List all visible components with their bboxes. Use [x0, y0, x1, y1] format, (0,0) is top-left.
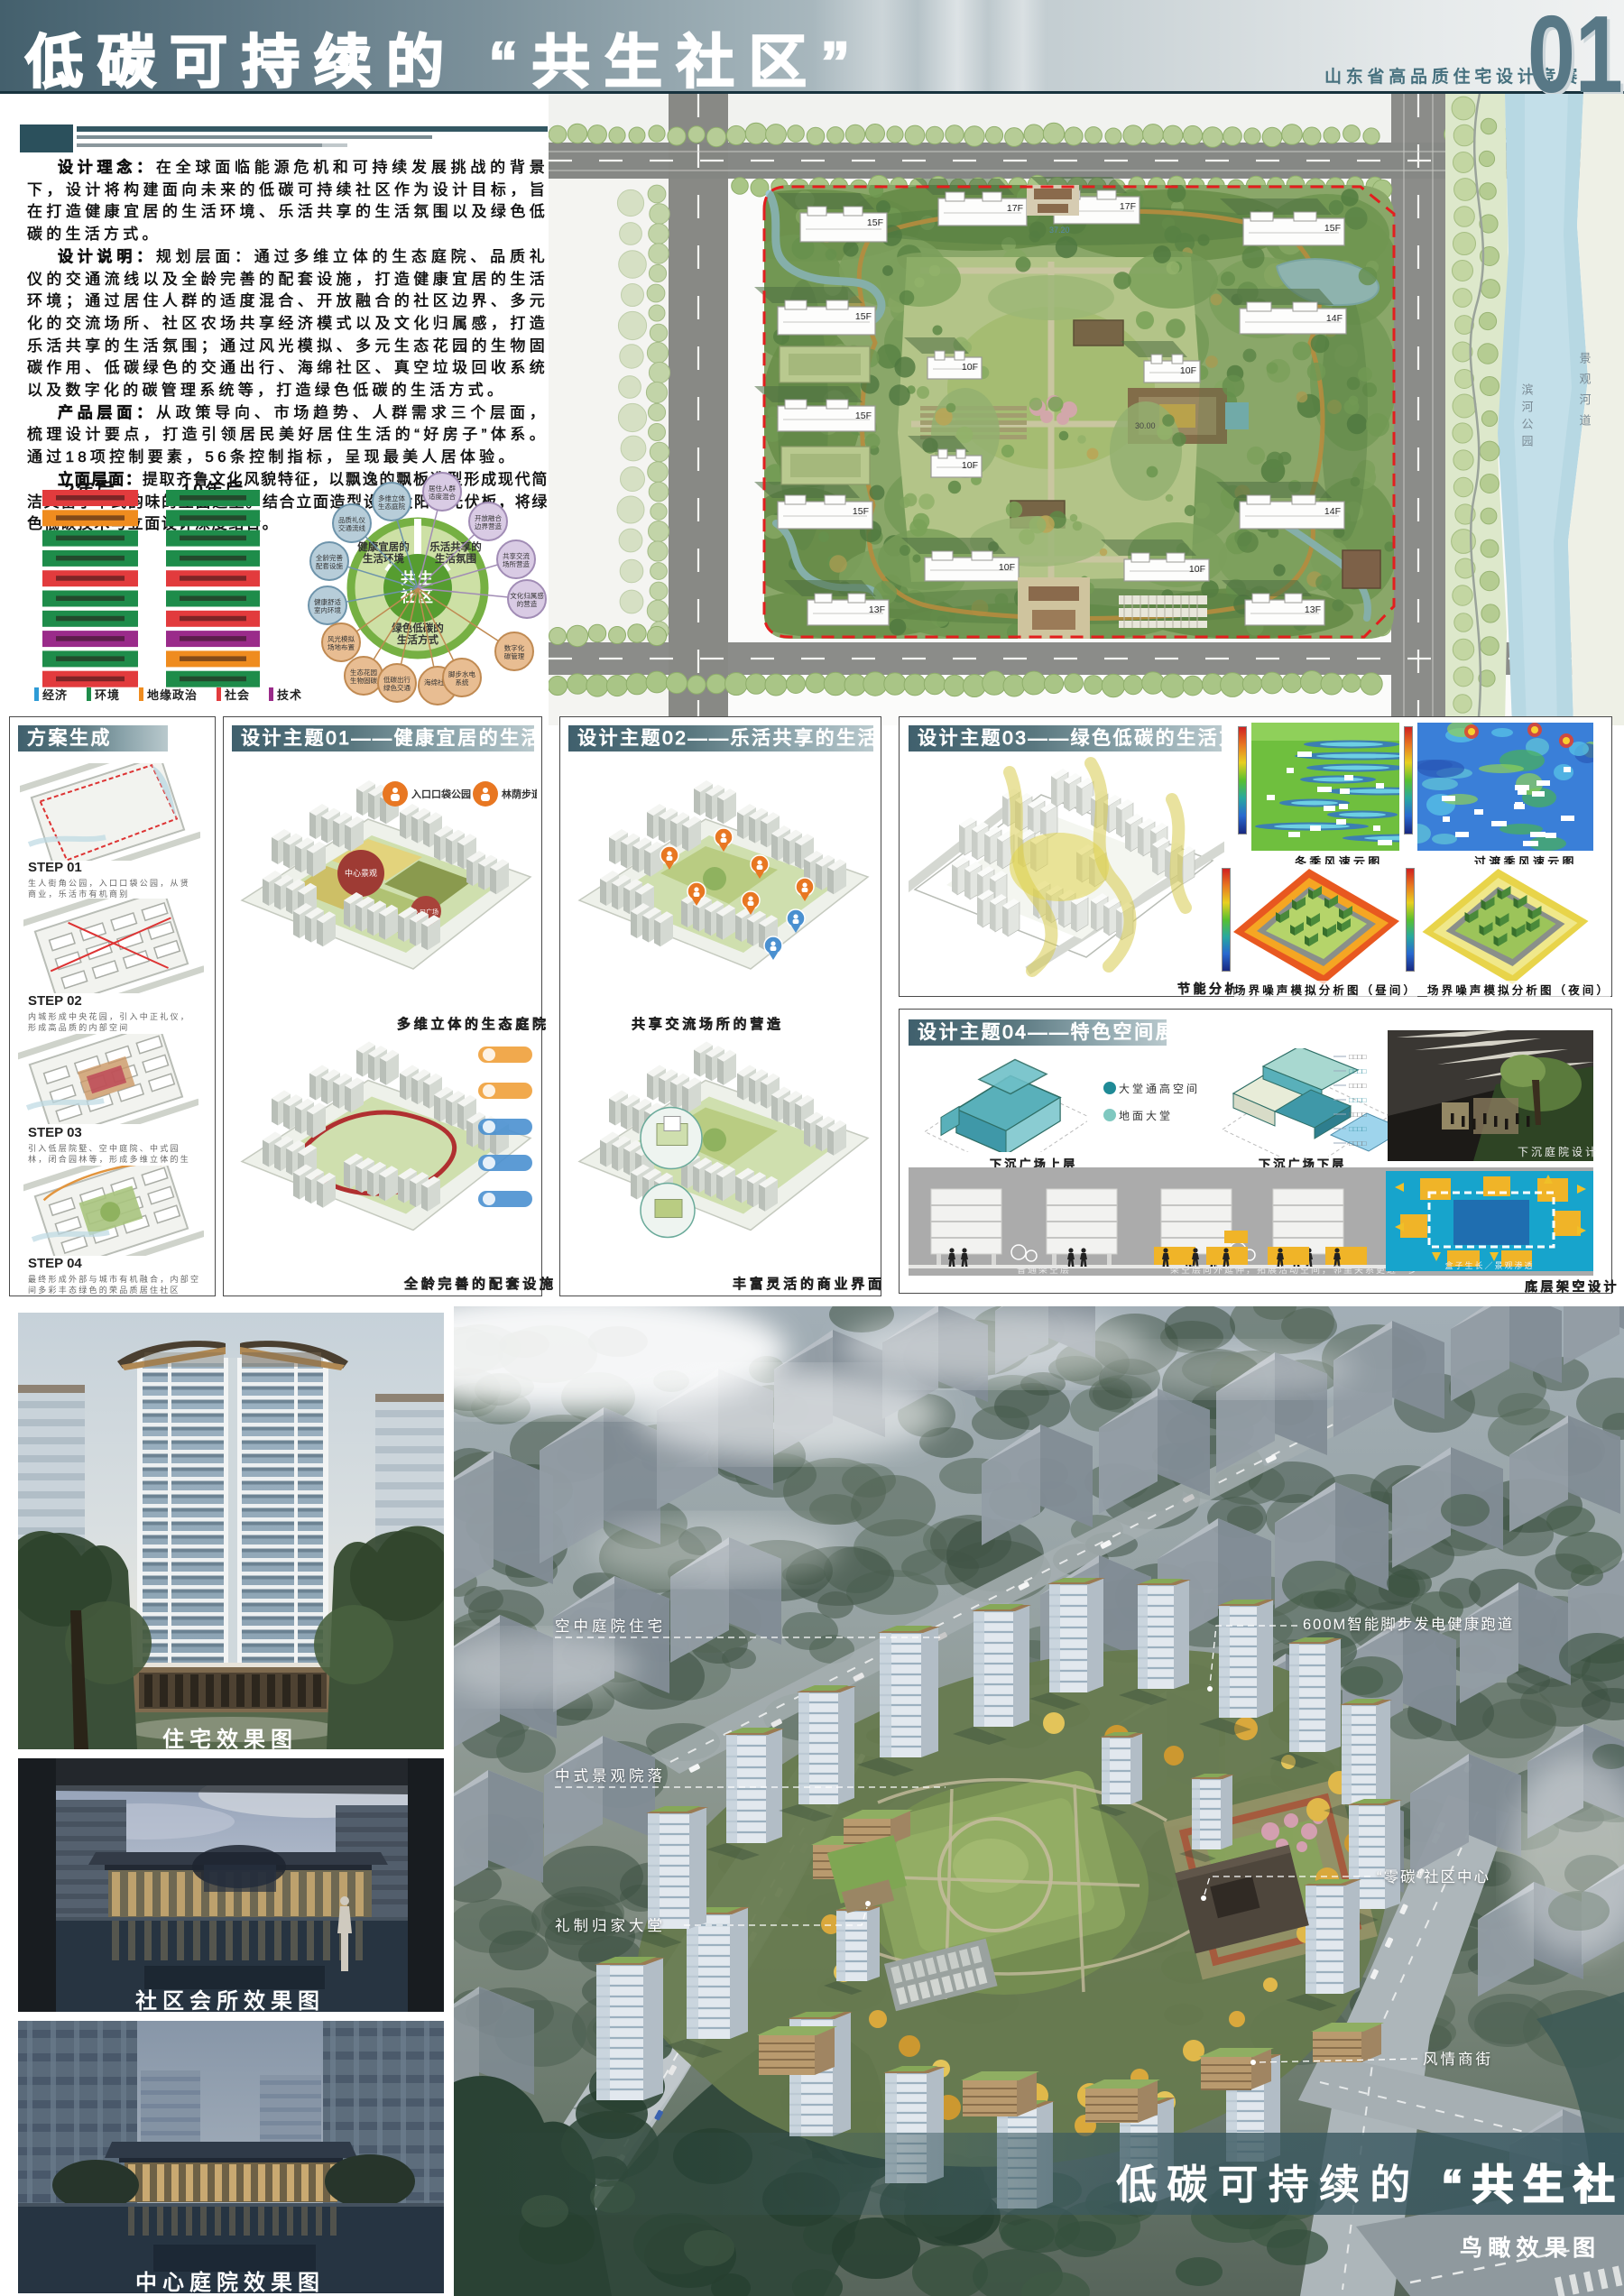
svg-text:室内环境: 室内环境 — [314, 605, 341, 614]
svg-text:交通流线: 交通流线 — [338, 523, 365, 532]
svg-text:礼制归家大堂: 礼制归家大堂 — [555, 1917, 666, 1934]
svg-text:中式景观院落: 中式景观院落 — [555, 1767, 666, 1784]
svg-text:滨河公园: 滨河公园 — [1520, 383, 1534, 452]
svg-text:绿色交通: 绿色交通 — [383, 683, 411, 692]
svg-text:林荫步道: 林荫步道 — [502, 788, 537, 800]
svg-text:15F: 15F — [853, 506, 869, 517]
svg-text:□□□□: □□□□ — [1349, 1139, 1366, 1148]
svg-text:14F: 14F — [1326, 313, 1343, 324]
svg-text:生态庭院: 生态庭院 — [378, 502, 405, 511]
svg-text:15F: 15F — [1324, 223, 1341, 234]
svg-text:13F: 13F — [1305, 604, 1321, 615]
svg-text:10F: 10F — [999, 562, 1015, 573]
svg-text:共享交流: 共享交流 — [503, 551, 530, 560]
svg-text:全龄完善: 全龄完善 — [316, 553, 343, 562]
svg-text:生态花园: 生态花园 — [350, 668, 377, 677]
svg-text:健康舒适: 健康舒适 — [314, 597, 341, 606]
svg-text:生活氛围: 生活氛围 — [435, 552, 476, 565]
svg-text:风光模拟: 风光模拟 — [328, 634, 355, 643]
svg-text:地缘政治: 地缘政治 — [147, 688, 198, 702]
svg-text:□□□□: □□□□ — [1349, 1096, 1366, 1104]
svg-text:600M智能脚步发电健康跑道: 600M智能脚步发电健康跑道 — [1303, 1616, 1514, 1633]
svg-text:碳管理: 碳管理 — [504, 651, 525, 660]
svg-text:风情商街: 风情商街 — [1423, 2051, 1493, 2068]
svg-text:数字化: 数字化 — [504, 643, 525, 652]
svg-text:健康宜居的: 健康宜居的 — [357, 540, 410, 553]
svg-text:37.20: 37.20 — [1049, 226, 1070, 235]
svg-text:系统: 系统 — [456, 678, 469, 687]
svg-text:□□□□: □□□□ — [1349, 1111, 1366, 1119]
svg-text:生活方式: 生活方式 — [397, 633, 438, 646]
svg-text:盒子生长／景观渗透: 盒子生长／景观渗透 — [1444, 1260, 1534, 1270]
svg-text:脚步水电: 脚步水电 — [448, 669, 475, 678]
svg-text:15F: 15F — [855, 410, 872, 421]
svg-text:□□□□: □□□□ — [1349, 1067, 1366, 1075]
svg-text:□□□□: □□□□ — [1349, 1125, 1366, 1133]
svg-text:10F: 10F — [962, 460, 978, 471]
svg-text:居住人群: 居住人群 — [429, 484, 456, 493]
svg-text:□□□□: □□□□ — [1349, 1082, 1366, 1090]
svg-text:开放融合: 开放融合 — [475, 513, 502, 522]
svg-text:经济: 经济 — [42, 688, 68, 702]
svg-text:的营造: 的营造 — [517, 599, 538, 608]
svg-text:配套设施: 配套设施 — [316, 561, 343, 570]
svg-text:14F: 14F — [1324, 506, 1341, 517]
svg-text:“零碳”社区中心: “零碳”社区中心 — [1377, 1868, 1490, 1886]
svg-text:品质礼仪: 品质礼仪 — [338, 515, 365, 524]
svg-text:□□□□: □□□□ — [1349, 1053, 1366, 1061]
svg-text:生物固碳: 生物固碳 — [350, 676, 377, 685]
svg-text:社会: 社会 — [224, 688, 250, 702]
svg-text:技术: 技术 — [277, 688, 302, 702]
svg-text:边界营造: 边界营造 — [475, 521, 502, 530]
svg-text:场地布置: 场地布置 — [328, 642, 355, 651]
svg-text:中心景观: 中心景观 — [345, 868, 377, 878]
svg-text:低碳出行: 低碳出行 — [383, 675, 411, 684]
svg-text:10F: 10F — [1189, 564, 1205, 575]
svg-text:文化归属感: 文化归属感 — [510, 591, 544, 600]
svg-text:30.00: 30.00 — [1135, 421, 1156, 430]
svg-text:架空层向外延伸，拓展活动空间，邻里关系更进一步: 架空层向外延伸，拓展活动空间，邻里关系更进一步 — [1170, 1264, 1419, 1276]
svg-text:17F: 17F — [1120, 201, 1136, 212]
svg-text:17F: 17F — [1007, 203, 1023, 214]
svg-text:15F: 15F — [867, 217, 883, 228]
svg-text:10F: 10F — [1180, 365, 1196, 376]
svg-text:入口口袋公园: 入口口袋公园 — [411, 788, 471, 800]
svg-text:15F: 15F — [855, 311, 872, 322]
svg-text:13F: 13F — [869, 604, 885, 615]
svg-text:场所营造: 场所营造 — [503, 559, 530, 568]
svg-text:适度混合: 适度混合 — [429, 492, 456, 501]
svg-text:环境: 环境 — [95, 688, 120, 702]
svg-text:普通架空层: 普通架空层 — [1017, 1264, 1071, 1276]
svg-text:10F: 10F — [962, 362, 978, 373]
svg-text:空中庭院住宅: 空中庭院住宅 — [555, 1618, 666, 1635]
svg-text:乐活共享的: 乐活共享的 — [429, 540, 482, 553]
svg-text:多维立体: 多维立体 — [378, 493, 405, 503]
svg-text:景观河道: 景观河道 — [1578, 352, 1592, 435]
